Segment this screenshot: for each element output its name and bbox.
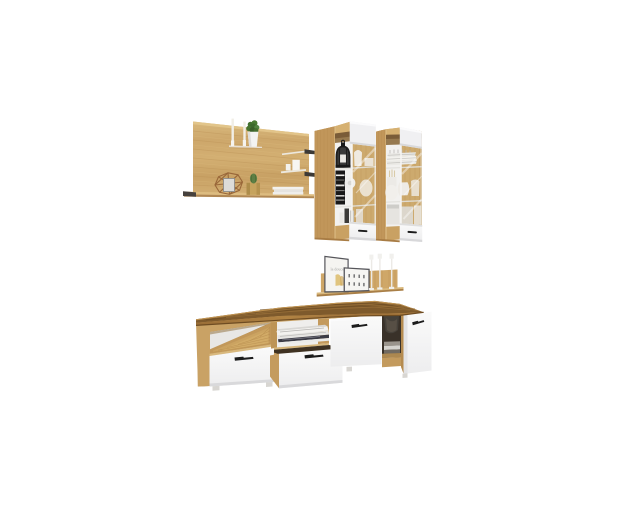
svg-text:la douce: la douce (331, 267, 345, 272)
